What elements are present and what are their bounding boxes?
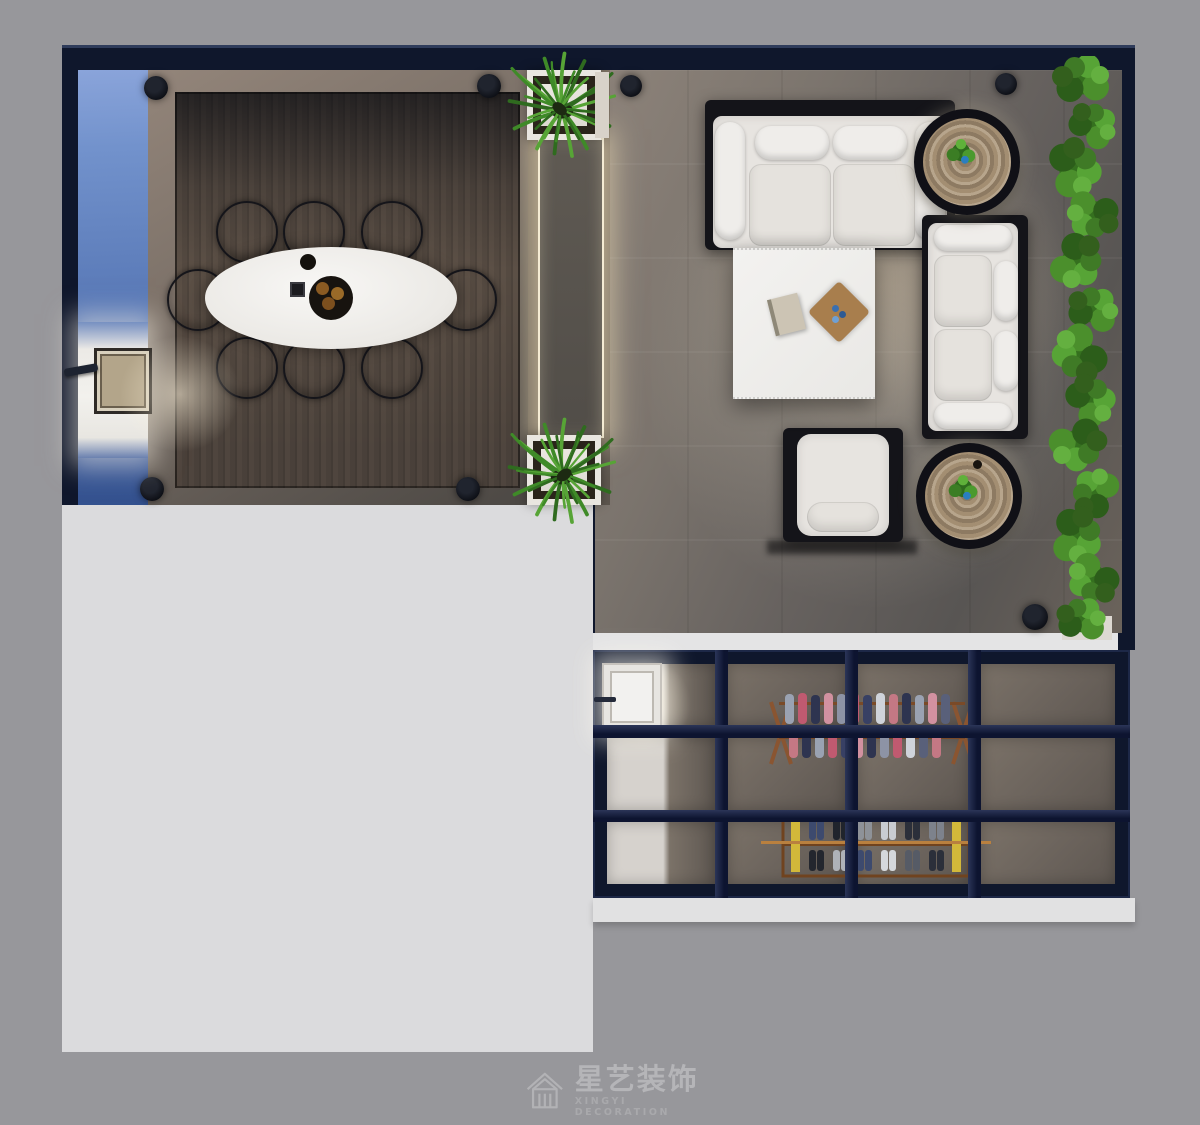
tray-decor-item (839, 311, 846, 318)
wardrobe-door-handle (594, 697, 616, 702)
corridor-end-wall (595, 72, 609, 138)
sofa-armrest-top (934, 225, 1012, 251)
sofa-back-pillow (994, 261, 1018, 321)
square-coaster (290, 282, 305, 297)
interior-top-view-render: 星艺装饰 XINGYI DECORATION (0, 0, 1200, 1125)
grid-mullion-vertical (968, 650, 981, 898)
sofa-armrest-bottom (934, 403, 1012, 429)
armchair (783, 428, 903, 542)
sofa-back-pillow (755, 126, 829, 160)
side-table-bowl (973, 460, 982, 469)
sofa-back-pillow (994, 331, 1018, 391)
grass-plant-bottom (502, 412, 622, 532)
sofa-seat-cushion (934, 329, 992, 401)
side-table-bottom (916, 443, 1022, 549)
door-light-glow (120, 336, 240, 452)
watermark: 星艺装饰 XINGYI DECORATION (524, 1062, 714, 1120)
hanging-clothes-row-1 (785, 693, 950, 724)
green-hedge (1048, 56, 1124, 642)
side-table-plant (943, 468, 983, 508)
grid-mullion-horizontal (593, 810, 1130, 822)
wardrobe-cell (607, 738, 715, 810)
living-downlight-bottom (1022, 604, 1048, 630)
deck-downlight-bottom-right (456, 477, 480, 501)
house-logo-icon (524, 1067, 566, 1115)
wardrobe-cell (981, 664, 1115, 725)
fruit (316, 282, 329, 295)
wardrobe-cell (607, 822, 715, 884)
side-table-plant (941, 132, 981, 172)
shoe-pairs-row-1 (809, 819, 944, 840)
two-seat-sofa (922, 215, 1028, 439)
grid-mullion-vertical (845, 650, 858, 898)
unrendered-area-bottom-left (62, 505, 593, 1052)
divider-strip-living-wardrobe (593, 633, 1118, 650)
yellow-shoe-column (791, 818, 800, 872)
sofa-armrest-left (715, 122, 745, 240)
sofa-back-pillow (833, 126, 907, 160)
armchair-shadow (767, 540, 917, 554)
coffee-table (733, 248, 875, 399)
grid-mullion-vertical (715, 650, 728, 898)
living-downlight-left (620, 75, 642, 97)
grid-mullion-horizontal (593, 725, 1130, 738)
yellow-shoe-column (952, 818, 961, 872)
armchair-seat-cushion (807, 502, 879, 532)
divider-strip-below-wardrobe (593, 898, 1135, 922)
illuminated-stone-panel (538, 138, 604, 438)
sofa-seat-cushion (833, 164, 915, 246)
shoe-rack (755, 812, 999, 880)
black-plate (300, 254, 316, 270)
wardrobe-cell (981, 822, 1115, 884)
watermark-title: 星艺装饰 (575, 1064, 714, 1094)
deck-downlight-top-right (477, 74, 501, 98)
brass-rail (761, 841, 991, 844)
shoe-pairs-row-2 (809, 850, 944, 871)
wardrobe-cell (981, 738, 1115, 810)
fruit (322, 297, 335, 310)
deck-downlight-bottom-left (140, 477, 164, 501)
side-table-top (914, 109, 1020, 215)
watermark-text-block: 星艺装饰 XINGYI DECORATION (575, 1064, 714, 1118)
book (767, 293, 806, 336)
round-fruit-tray (309, 276, 353, 320)
tray-decor-item (832, 316, 839, 323)
sofa-seat-cushion (934, 255, 992, 327)
living-downlight-right (995, 73, 1017, 95)
deck-downlight-top-left (144, 76, 168, 100)
sofa-seat-cushion (749, 164, 831, 246)
tray-decor-item (832, 305, 839, 312)
watermark-subtitle: XINGYI DECORATION (575, 1096, 714, 1118)
